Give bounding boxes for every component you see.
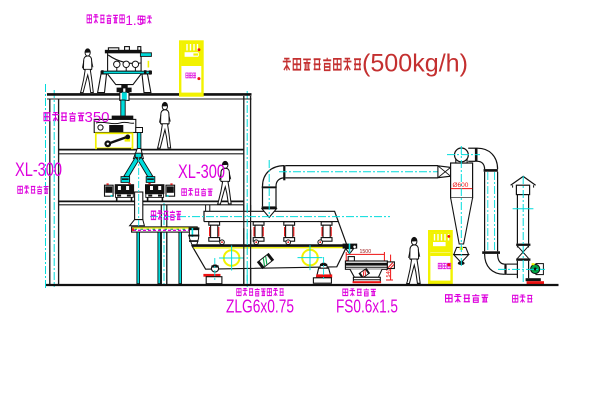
- svg-text:XL-300: XL-300: [15, 160, 62, 181]
- svg-text:Ø600: Ø600: [453, 182, 469, 189]
- svg-text:1500: 1500: [360, 249, 372, 255]
- svg-text:FS0.6x1.5: FS0.6x1.5: [336, 297, 398, 317]
- svg-text:(500kg/h): (500kg/h): [362, 50, 468, 78]
- svg-text:ZLG6x0.75: ZLG6x0.75: [226, 297, 294, 317]
- svg-text:540: 540: [386, 269, 392, 278]
- svg-text:XL-300: XL-300: [178, 162, 225, 183]
- svg-text:1.5: 1.5: [125, 13, 144, 28]
- svg-text:350: 350: [85, 109, 110, 126]
